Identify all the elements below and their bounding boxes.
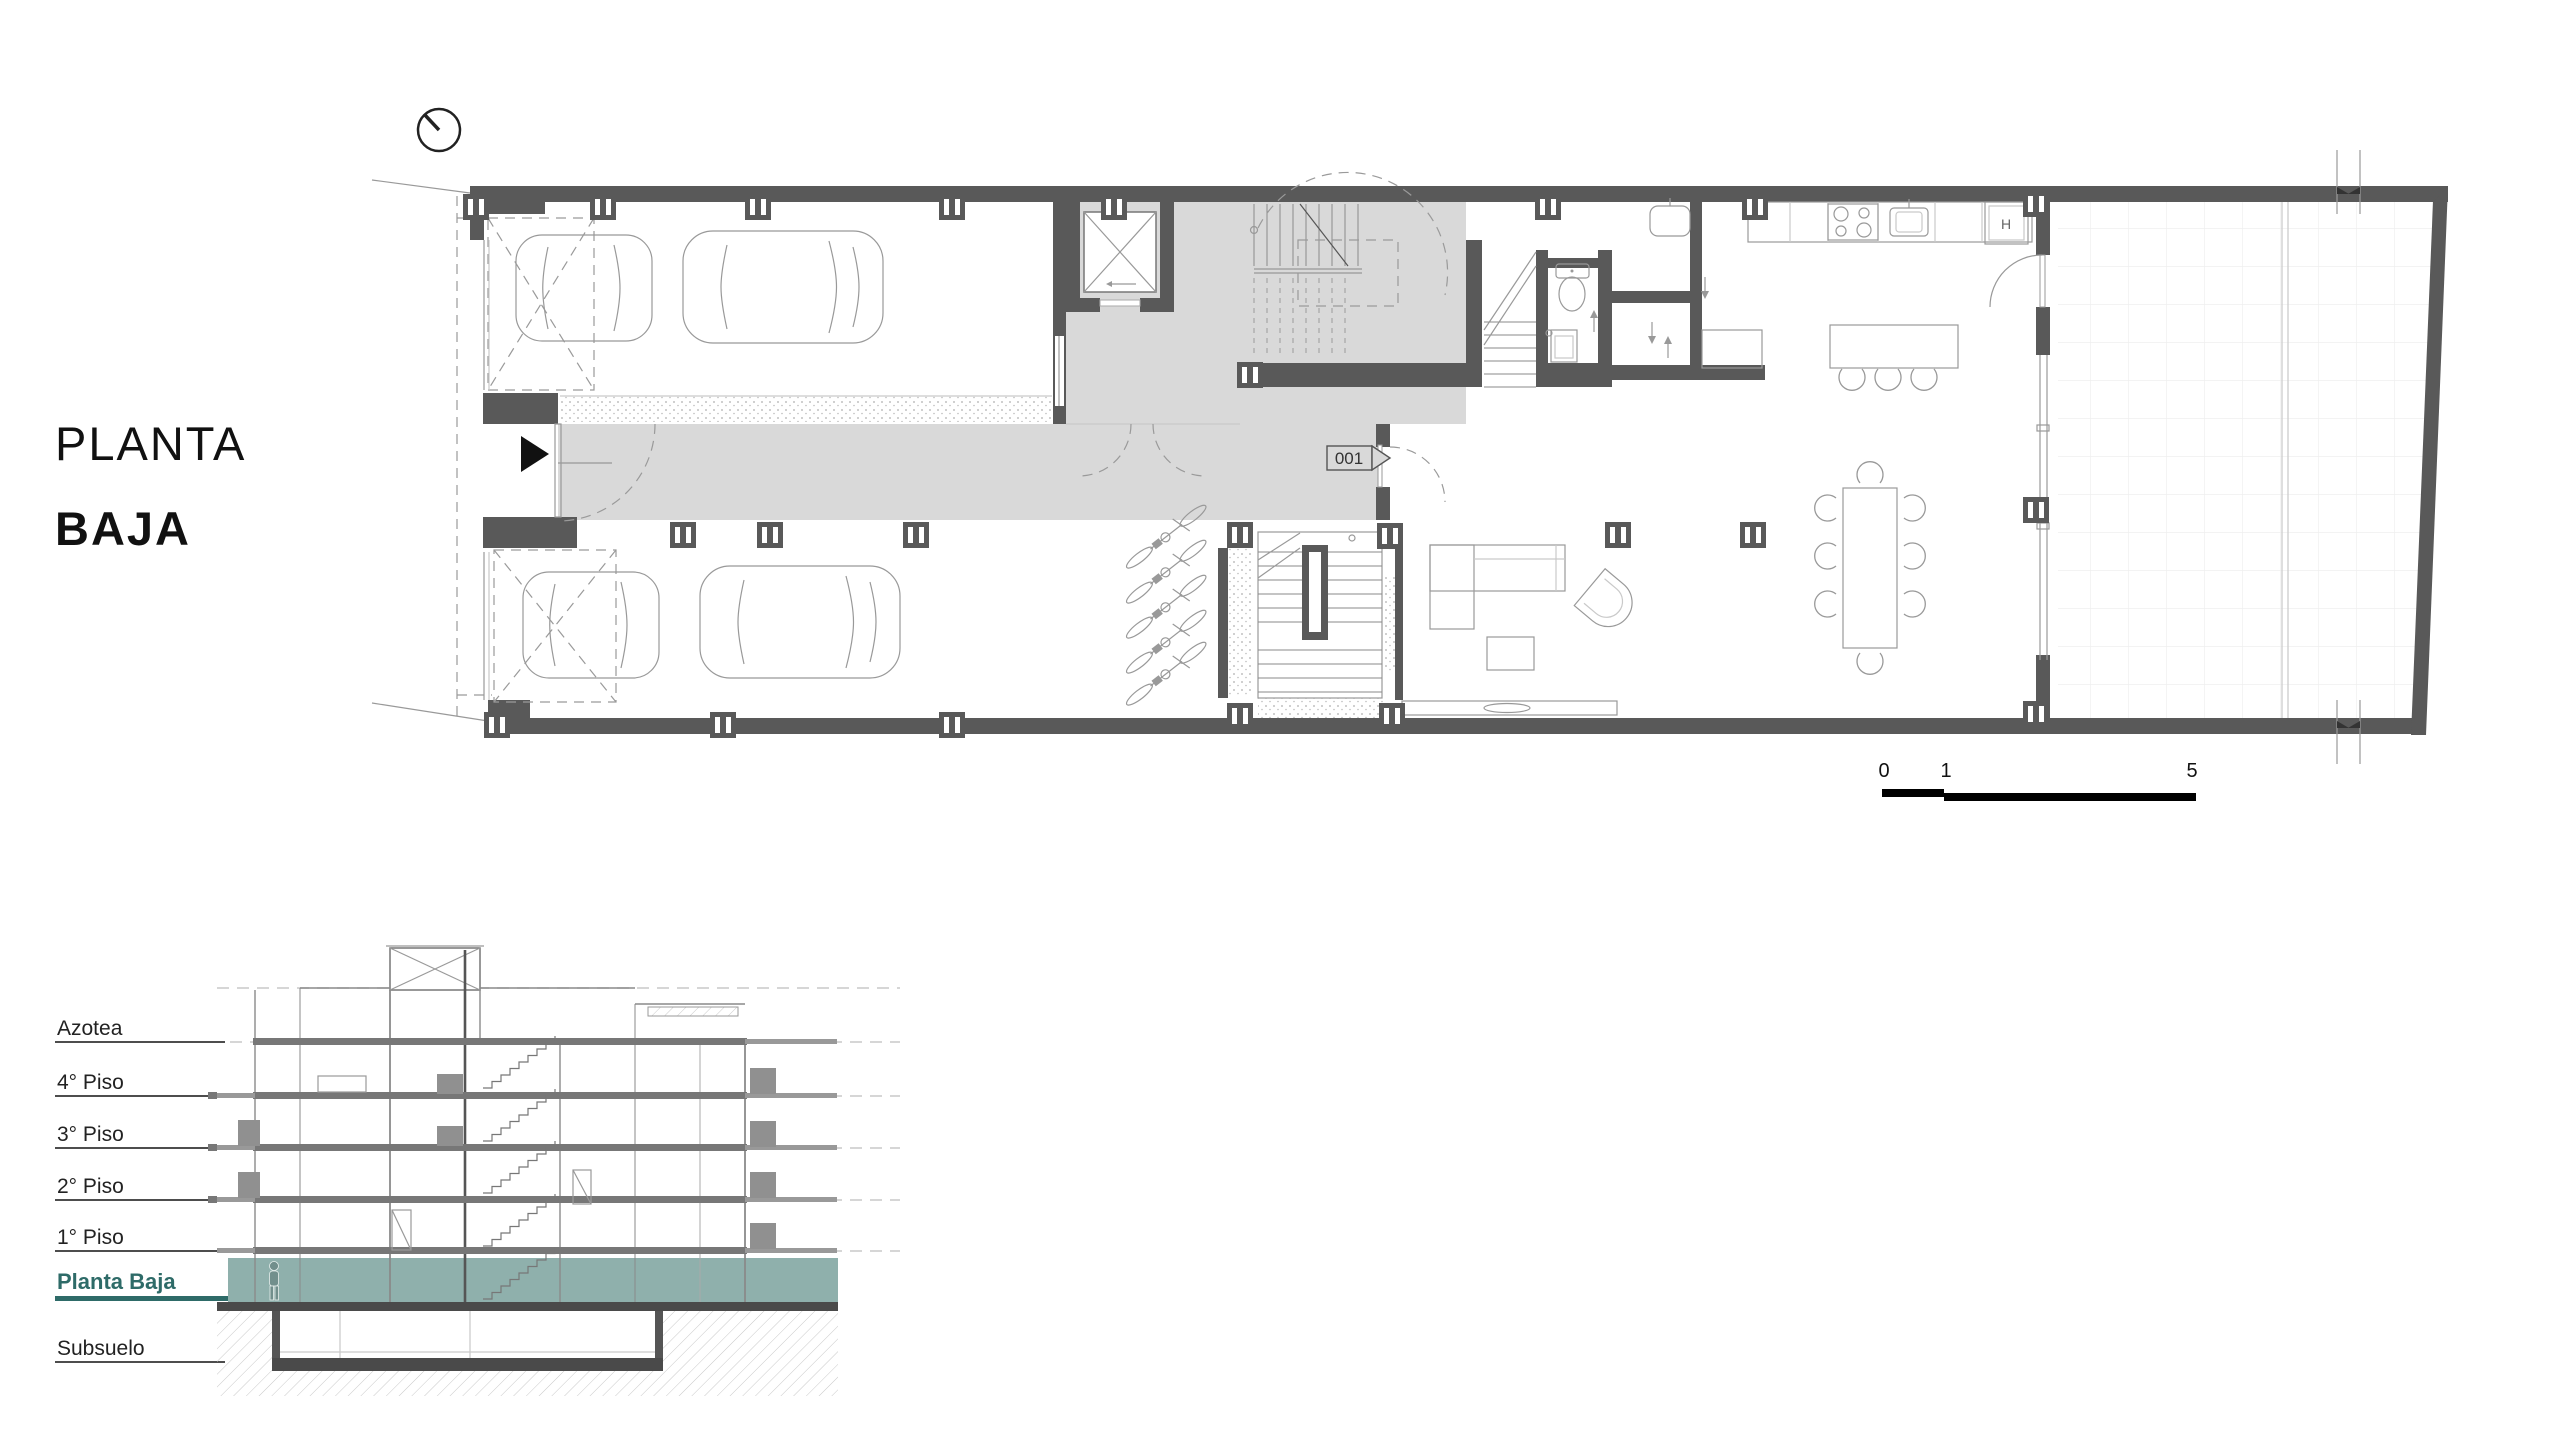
car bbox=[516, 235, 652, 341]
corridor-floor bbox=[558, 202, 1466, 520]
column-icon bbox=[1237, 362, 1263, 388]
sink-icon bbox=[1546, 330, 1577, 362]
north-arrow-icon bbox=[418, 109, 460, 151]
title-line-1: PLANTA bbox=[55, 417, 246, 470]
kitchen-island bbox=[1830, 325, 1958, 390]
room-tag-label: 001 bbox=[1335, 449, 1363, 468]
stool-icon bbox=[1839, 369, 1865, 390]
basement-room bbox=[280, 1311, 655, 1360]
bike-icon bbox=[1121, 568, 1212, 645]
appliance-label: H bbox=[2001, 216, 2011, 232]
section-furniture bbox=[318, 1076, 366, 1092]
dining-area bbox=[1815, 462, 1926, 675]
dining-table bbox=[1843, 488, 1897, 648]
parking-spot bbox=[488, 218, 594, 390]
level-label-2piso: 2° Piso bbox=[57, 1175, 124, 1198]
property-line bbox=[372, 180, 492, 721]
sheet-title: PLANTA BAJA bbox=[55, 417, 246, 555]
level-lines-dashed bbox=[217, 988, 900, 1251]
level-label-1piso: 1° Piso bbox=[57, 1226, 124, 1249]
section-doors bbox=[392, 1170, 591, 1250]
small-staircase bbox=[1484, 252, 1536, 387]
car bbox=[683, 231, 883, 343]
basement-staircase bbox=[1258, 532, 1382, 698]
armchair bbox=[1574, 569, 1642, 637]
kitchen: H bbox=[1748, 199, 2032, 390]
laundry-room bbox=[1648, 198, 1762, 368]
bike-parking bbox=[1121, 498, 1212, 712]
section-levels: Azotea 4° Piso 3° Piso 2° Piso 1° Piso P… bbox=[55, 1017, 228, 1362]
blueprint-page: PLANTA BAJA bbox=[0, 0, 2560, 1439]
scale-tick-5: 5 bbox=[2186, 760, 2197, 782]
garage-bottom bbox=[484, 550, 900, 702]
scale-tick-0: 0 bbox=[1878, 760, 1889, 782]
stool-icon bbox=[1911, 369, 1937, 390]
tv-unit bbox=[1402, 701, 1617, 715]
level-label-azotea: Azotea bbox=[57, 1017, 123, 1040]
elevator-tower bbox=[386, 946, 484, 990]
section-drawing: Azotea 4° Piso 3° Piso 2° Piso 1° Piso P… bbox=[55, 946, 900, 1396]
bike-icon bbox=[1121, 533, 1212, 610]
garage-top bbox=[484, 218, 883, 390]
powder-room bbox=[1546, 264, 1598, 362]
car bbox=[700, 566, 900, 678]
coffee-table bbox=[1487, 637, 1534, 670]
title-line-2: BAJA bbox=[55, 502, 191, 555]
scale-bar: 0 1 5 bbox=[1878, 760, 2197, 801]
toilet-icon bbox=[1556, 264, 1589, 311]
car bbox=[523, 572, 659, 678]
drawing-sheet: PLANTA BAJA bbox=[0, 0, 2560, 1439]
level-label-3piso: 3° Piso bbox=[57, 1123, 124, 1146]
ground bbox=[217, 1302, 838, 1396]
living-room bbox=[1402, 545, 1642, 715]
sofa bbox=[1430, 545, 1565, 629]
level-band-highlight bbox=[228, 1258, 838, 1304]
entry-arrow-icon bbox=[521, 436, 549, 472]
parking-spot bbox=[494, 550, 616, 702]
terrace bbox=[2058, 202, 2443, 718]
level-label-4piso: 4° Piso bbox=[57, 1071, 124, 1094]
section-building bbox=[208, 946, 837, 1302]
level-label-subsuelo: Subsuelo bbox=[57, 1337, 145, 1360]
planta-baja-underline bbox=[55, 1296, 228, 1301]
floor-plan: 001 bbox=[372, 150, 2448, 764]
scale-tick-1: 1 bbox=[1940, 760, 1951, 782]
stool-icon bbox=[1875, 369, 1901, 390]
floor-slabs bbox=[253, 1038, 747, 1254]
dining-chairs bbox=[1815, 462, 1926, 675]
bike-icon bbox=[1121, 603, 1212, 680]
level-label-planta-baja: Planta Baja bbox=[57, 1269, 176, 1294]
